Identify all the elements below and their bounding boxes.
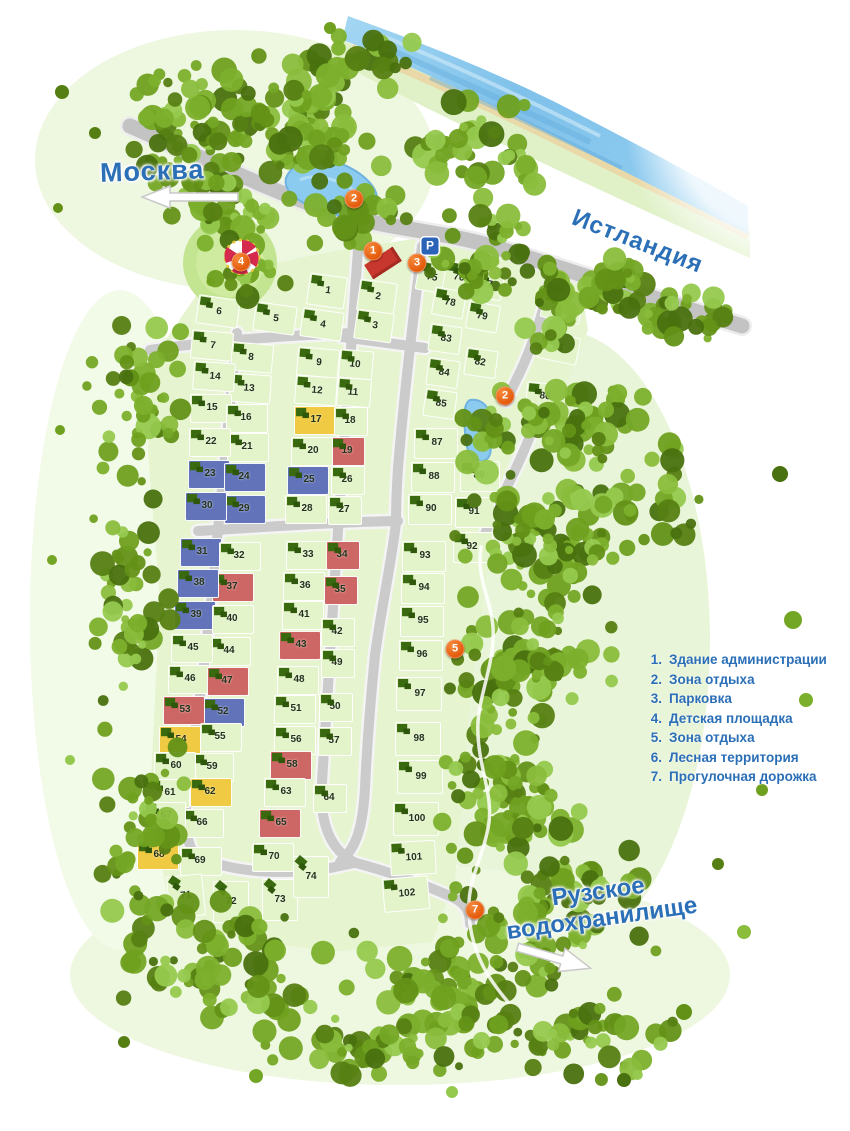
plot-number: 22 (205, 437, 216, 447)
plot-number: 93 (419, 551, 430, 561)
plot-cell: 24 (224, 463, 266, 492)
plot-cell: 69 (180, 847, 222, 876)
plot-cell: 67 (144, 802, 186, 831)
plot-number: 95 (417, 616, 428, 626)
plot-number: 46 (184, 674, 195, 684)
plot-number: 16 (240, 413, 251, 423)
plot-number: 14 (209, 371, 221, 382)
plot-number: 60 (170, 761, 181, 771)
plot-cell: 48 (277, 666, 319, 695)
plot-number: 99 (415, 772, 426, 782)
plot-cell: 87 (414, 428, 458, 459)
plot-cell: 22 (189, 428, 231, 457)
plot-number: 67 (160, 811, 171, 821)
plot-number: 58 (286, 760, 297, 770)
plot-cell: 82 (463, 347, 499, 379)
plot-number: 4 (320, 319, 327, 330)
plot-cell: 49 (321, 649, 355, 678)
plot-cell: 100 (393, 802, 439, 836)
plot-number: 94 (418, 583, 429, 593)
plot-number: 47 (221, 676, 232, 686)
plot-cell: 51 (274, 695, 316, 724)
plot-number: 9 (316, 357, 322, 367)
plot-cell: 42 (321, 618, 355, 647)
plot-cell: 34 (326, 541, 360, 570)
plot-cell: 6 (195, 294, 241, 329)
plot-cell: 31 (180, 538, 222, 567)
plot-number: 90 (425, 504, 436, 514)
plot-cell: 93 (402, 541, 446, 572)
plot-cell: 29 (224, 495, 266, 524)
plot-number: 31 (196, 547, 207, 557)
plot-number: 23 (204, 469, 215, 479)
plot-number: 56 (290, 735, 301, 745)
plot-number: 36 (299, 581, 310, 591)
plot-cell: 46 (168, 665, 210, 694)
plot-cell: 32 (219, 542, 261, 571)
plot-cell: 54 (159, 726, 201, 755)
plot-cell: 74 (293, 856, 329, 898)
plot-cell: 16 (226, 404, 268, 433)
plot-cell: 58 (270, 751, 312, 780)
plot-number: 69 (194, 856, 205, 866)
plot-number: 59 (206, 762, 217, 772)
plot-cell: 60 (154, 752, 196, 781)
plot-number: 17 (310, 415, 321, 425)
plot-number: 74 (305, 872, 316, 882)
plot-number: 68 (153, 850, 164, 860)
plot-cell: 89 (460, 461, 500, 492)
plot-cell: 85 (422, 388, 458, 420)
plot-number: 37 (226, 582, 237, 592)
plot-cell: 36 (283, 572, 325, 601)
plot-cell: 26 (331, 466, 365, 495)
plot-number: 73 (274, 895, 285, 905)
plot-cell: 95 (400, 606, 444, 637)
plot-cell: 4 (299, 307, 345, 342)
plot-number: 30 (201, 501, 212, 511)
plot-cell: 102 (382, 875, 431, 913)
plots-grid: 1234567891011121314151617181920212223242… (0, 0, 850, 1131)
plot-cell: 45 (171, 634, 213, 663)
plot-cell: 3 (353, 309, 395, 344)
plot-cell: 94 (401, 573, 445, 604)
plot-number: 38 (193, 578, 204, 588)
plot-cell: 84 (425, 357, 461, 389)
plot-cell: 68 (137, 841, 179, 870)
plot-number: 6 (216, 306, 223, 317)
plot-cell: 39 (174, 601, 216, 630)
plot-number: 25 (303, 475, 314, 485)
plot-cell: 55 (200, 723, 242, 752)
plot-cell: 28 (285, 495, 327, 524)
plot-cell: 5 (252, 301, 298, 336)
plot-number: 62 (204, 787, 215, 797)
plot-cell: 11 (336, 376, 372, 407)
plot-cell: 44 (209, 637, 251, 666)
plot-number: 33 (302, 550, 313, 560)
plot-number: 55 (214, 732, 225, 742)
plot-number: 51 (290, 704, 301, 714)
plot-number: 61 (164, 788, 175, 798)
plot-number: 65 (275, 818, 286, 828)
plot-number: 87 (431, 438, 442, 448)
plot-number: 101 (405, 853, 422, 864)
plot-cell: 14 (192, 360, 236, 392)
settlement-masterplan-map: 1234567891011121314151617181920212223242… (0, 0, 850, 1131)
plot-cell: 27 (328, 496, 362, 525)
plot-cell: 12 (294, 374, 338, 406)
plot-cell: 62 (190, 778, 232, 807)
plot-number: 2 (375, 292, 382, 303)
plot-number: 21 (241, 442, 252, 452)
plot-cell: 90 (408, 494, 452, 525)
plot-number: 5 (273, 313, 280, 324)
plot-cell: 17 (294, 406, 336, 435)
plot-cell: 98 (395, 722, 441, 756)
plot-cell: 9 (296, 346, 340, 379)
plot-number: 48 (293, 675, 304, 685)
plot-cell: 41 (282, 601, 324, 630)
plot-cell: 43 (279, 631, 321, 660)
plot-cell: 91 (455, 497, 495, 528)
plot-cell: 25 (287, 466, 329, 495)
plot-cell: 50 (319, 693, 353, 722)
plot-number: 24 (238, 472, 249, 482)
plot-number: 32 (233, 551, 244, 561)
plot-cell: 21 (227, 433, 269, 462)
plot-cell: 81 (537, 330, 582, 366)
plot-number: 52 (217, 707, 228, 717)
plot-number: 71 (180, 890, 192, 901)
plot-cell: 96 (399, 640, 443, 671)
plot-number: 70 (268, 852, 279, 862)
plot-cell: 77 (471, 269, 505, 302)
plot-number: 15 (206, 403, 217, 413)
plot-number: 97 (414, 689, 425, 699)
plot-cell: 35 (324, 576, 358, 605)
plot-cell: 57 (318, 727, 352, 756)
plot-number: 88 (428, 472, 439, 482)
plot-cell: 47 (207, 667, 249, 696)
plot-cell: 79 (465, 300, 501, 333)
plot-cell: 65 (259, 809, 301, 838)
plot-cell: 99 (397, 760, 443, 794)
plot-cell: 70 (252, 843, 294, 872)
plot-number: 20 (307, 446, 318, 456)
plot-cell: 72 (213, 881, 249, 923)
plot-number: 40 (226, 614, 237, 624)
plot-cell: 63 (264, 778, 306, 807)
plot-cell: 66 (182, 809, 224, 838)
plot-number: 53 (179, 705, 190, 715)
plot-number: 41 (298, 610, 309, 620)
plot-number: 72 (225, 897, 236, 907)
plot-number: 43 (295, 640, 306, 650)
plot-number: 3 (372, 321, 379, 332)
plot-number: 28 (301, 504, 312, 514)
plot-number: 1 (325, 286, 332, 297)
plot-cell: 10 (338, 348, 374, 380)
plot-cell: 40 (212, 605, 254, 634)
plot-cell: 88 (411, 462, 455, 493)
plot-cell: 19 (331, 437, 365, 466)
plot-cell: 80 (540, 289, 585, 325)
plot-number: 100 (409, 814, 426, 824)
plot-number: 63 (280, 787, 291, 797)
plot-cell: 8 (230, 341, 274, 374)
plot-number: 98 (413, 734, 424, 744)
plot-cell: 83 (427, 323, 463, 355)
plot-cell: 86 (525, 381, 568, 413)
plot-number: 29 (238, 504, 249, 514)
plot-cell: 30 (185, 492, 227, 521)
plot-number: 44 (223, 646, 234, 656)
plot-number: 8 (248, 352, 254, 362)
plot-cell: 1 (306, 273, 348, 310)
plot-number: 12 (311, 385, 323, 396)
plot-number: 7 (210, 340, 216, 350)
plot-cell: 97 (396, 677, 442, 711)
plot-cell: 20 (291, 437, 333, 466)
plot-cell: 38 (177, 569, 219, 598)
plot-cell: 92 (453, 532, 493, 563)
plot-number: 102 (398, 888, 415, 899)
plot-number: 54 (175, 735, 186, 745)
plot-number: 39 (190, 610, 201, 620)
plot-cell: 18 (334, 407, 368, 436)
plot-number: 66 (196, 818, 207, 828)
plot-cell: 53 (163, 696, 205, 725)
plot-cell: 71 (166, 873, 206, 919)
plot-number: 96 (416, 650, 427, 660)
plot-cell: 101 (389, 840, 437, 876)
plot-cell: 78 (431, 286, 467, 319)
plot-cell: 64 (313, 784, 347, 813)
plot-number: 45 (187, 643, 198, 653)
plot-cell: 7 (190, 329, 234, 362)
plot-cell: 33 (286, 541, 328, 570)
